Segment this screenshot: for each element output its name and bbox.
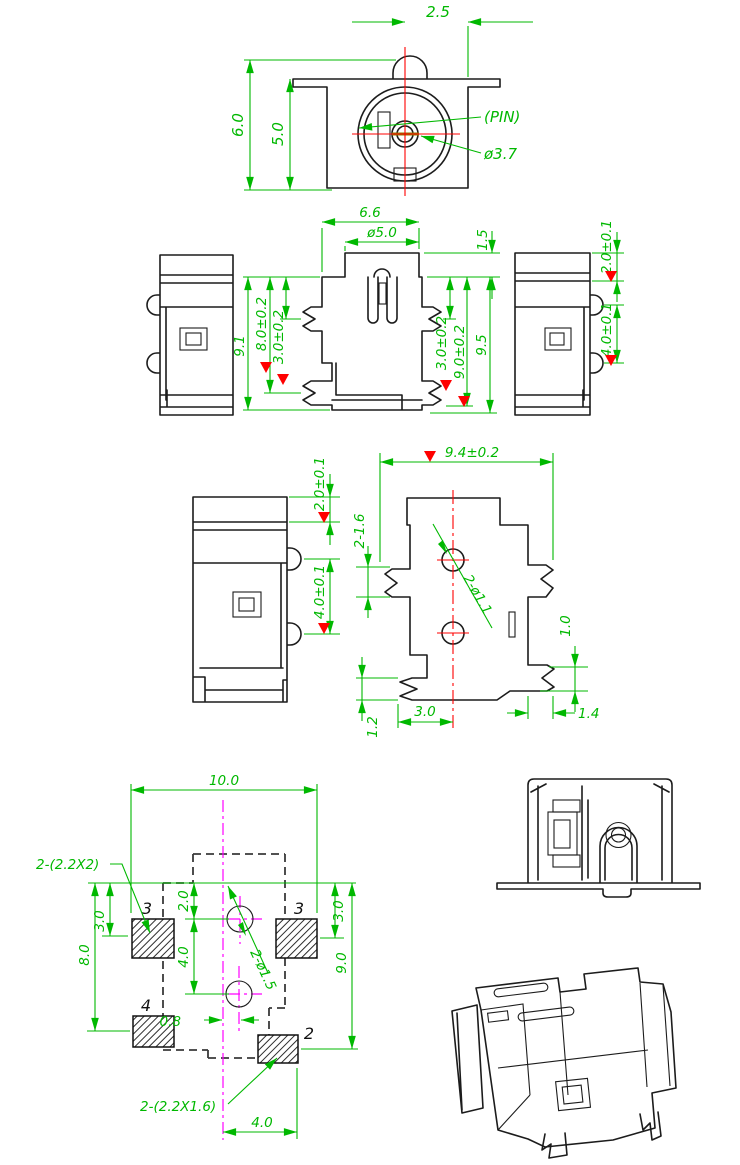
front-elevation-outline bbox=[303, 253, 441, 410]
side-left-window-inner bbox=[186, 333, 201, 345]
rear-contact-tab-top bbox=[553, 800, 580, 812]
dim-pad2-x: 4.0 bbox=[251, 1115, 272, 1131]
dim-lugs-16: 2-1.6 bbox=[352, 514, 368, 549]
label-pin-diameter: ø3.7 bbox=[483, 145, 517, 163]
side-right-window-inner bbox=[550, 333, 564, 345]
isometric-slot-mid bbox=[518, 1007, 575, 1022]
label-side-pads: 2-(2.2X2) bbox=[36, 857, 99, 873]
dim-bushing-diameter: ø5.0 bbox=[366, 225, 397, 241]
pad-label-2: 2 bbox=[304, 1024, 314, 1043]
dim-height-91: 9.1 bbox=[232, 335, 248, 356]
dim-hole-top-offset: 2.0 bbox=[176, 890, 192, 911]
isometric-view bbox=[452, 968, 676, 1158]
dim-small-cap: 2.0±0.1 bbox=[599, 220, 615, 274]
dim-pad3-offset: 3.0 bbox=[92, 910, 108, 931]
isometric-slot-small bbox=[488, 1011, 509, 1022]
pad-label-3-left: 3 bbox=[142, 899, 152, 918]
dim-bushing-height: 1.5 bbox=[475, 229, 491, 250]
dim-holes-11: 2-ø1.1 bbox=[460, 572, 495, 617]
side-large-window bbox=[233, 592, 261, 617]
bottom-view-slot bbox=[509, 612, 515, 637]
isometric-lug-right bbox=[640, 1112, 661, 1140]
rear-view-outline bbox=[497, 779, 700, 897]
rear-view bbox=[497, 779, 700, 897]
dim-hole-pitch: 4.0 bbox=[176, 946, 192, 967]
front-elevation-view: 6.6 ø5.0 1.5 9.1 8.0±0.2 3.0±0.2 3.0±0.2… bbox=[232, 205, 500, 413]
leader-arrow-pcb-holes bbox=[238, 922, 246, 936]
dim-pad2-span: 9.0 bbox=[334, 952, 350, 973]
datum-triangle-large-pitch bbox=[318, 623, 330, 634]
datum-triangle-30-left bbox=[277, 374, 289, 385]
isometric-window-inner bbox=[562, 1085, 583, 1104]
dim-front-width: 2.5 bbox=[426, 3, 450, 21]
datum-triangle-94 bbox=[424, 451, 436, 462]
bottom-view: 9.4±0.2 2-1.6 2-ø1.1 1.0 1.2 3.0 1.4 bbox=[352, 445, 599, 738]
pad-3-left bbox=[132, 919, 174, 958]
datum-triangle-90 bbox=[458, 396, 470, 407]
dim-lug-30-left: 3.0±0.2 bbox=[271, 310, 287, 364]
side-view-right: 2.0±0.1 4.0±0.1 bbox=[515, 220, 624, 415]
dim-small-pitch: 4.0±0.1 bbox=[599, 303, 615, 357]
isometric-flange bbox=[452, 1005, 483, 1113]
dim-foot-height: 1.2 bbox=[365, 716, 381, 737]
side-right-window bbox=[545, 328, 571, 350]
side-left-window bbox=[180, 328, 207, 350]
dim-bottom-width: 9.4±0.2 bbox=[445, 445, 499, 461]
dim-pcb-width: 10.0 bbox=[209, 773, 239, 789]
rear-contact-tab-bottom bbox=[553, 855, 580, 867]
label-pcb-holes: 2-ø1.5 bbox=[246, 947, 279, 993]
dim-large-pitch: 4.0±0.1 bbox=[312, 565, 328, 619]
side-view-left bbox=[147, 255, 233, 415]
drawing-page: 2.5 6.0 5.0 (PIN) ø3.7 6.6 ø5.0 1.5 9.1 … bbox=[0, 0, 740, 1160]
datum-triangle-small-pitch bbox=[605, 355, 617, 366]
technical-drawing-canvas: 2.5 6.0 5.0 (PIN) ø3.7 6.6 ø5.0 1.5 9.1 … bbox=[0, 0, 740, 1160]
front-view: 2.5 6.0 5.0 (PIN) ø3.7 bbox=[229, 3, 533, 196]
dim-lug-height: 1.0 bbox=[558, 615, 574, 636]
dim-lug-30-right: 3.0±0.2 bbox=[434, 316, 450, 370]
side-view-large: 2.0±0.1 4.0±0.1 bbox=[193, 457, 340, 702]
dim-height-80: 8.0±0.2 bbox=[254, 297, 270, 351]
pcb-layout: 3 3 4 2 10.0 2-(2.2X2) 3.0 8.0 2.0 4.0 0… bbox=[36, 773, 358, 1140]
dim-front-height-outer: 6.0 bbox=[229, 113, 247, 137]
pad-2 bbox=[258, 1035, 298, 1063]
dim-pad4-span: 8.0 bbox=[77, 944, 93, 965]
side-view-large-outline bbox=[193, 497, 301, 702]
isometric-window bbox=[556, 1078, 591, 1110]
pad-label-3-right: 3 bbox=[294, 899, 304, 918]
dim-hole-x-offset: 0.8 bbox=[160, 1014, 181, 1030]
datum-triangle-30-right bbox=[440, 380, 452, 391]
isometric-body-outline bbox=[476, 968, 676, 1147]
side-view-right-outline bbox=[515, 253, 603, 415]
bottom-view-outline bbox=[385, 498, 554, 700]
dim-pad3r-offset: 3.0 bbox=[331, 900, 347, 921]
datum-triangle-large-cap bbox=[318, 512, 330, 523]
dim-foot-width: 1.4 bbox=[578, 706, 599, 722]
datum-triangle-small-cap bbox=[605, 271, 617, 282]
pad-3-right bbox=[276, 919, 317, 958]
side-view-left-outline bbox=[147, 255, 233, 415]
dim-front-height-inner: 5.0 bbox=[269, 122, 287, 146]
label-pin: (PIN) bbox=[484, 108, 520, 126]
dim-large-cap: 2.0±0.1 bbox=[312, 457, 328, 511]
side-large-window-inner bbox=[239, 598, 254, 611]
label-bottom-pads: 2-(2.2X1.6) bbox=[140, 1099, 216, 1115]
dim-hole-offset: 3.0 bbox=[414, 704, 435, 720]
pad-label-4: 4 bbox=[141, 996, 151, 1015]
dim-height-95: 9.5 bbox=[474, 334, 490, 355]
center-pin bbox=[379, 283, 386, 304]
dim-top-width: 6.6 bbox=[359, 205, 380, 221]
isometric-internal-lines bbox=[481, 983, 670, 1130]
dim-height-90: 9.0±0.2 bbox=[452, 325, 468, 379]
rear-contact-inner bbox=[554, 820, 570, 848]
barrel-slot bbox=[378, 112, 390, 148]
